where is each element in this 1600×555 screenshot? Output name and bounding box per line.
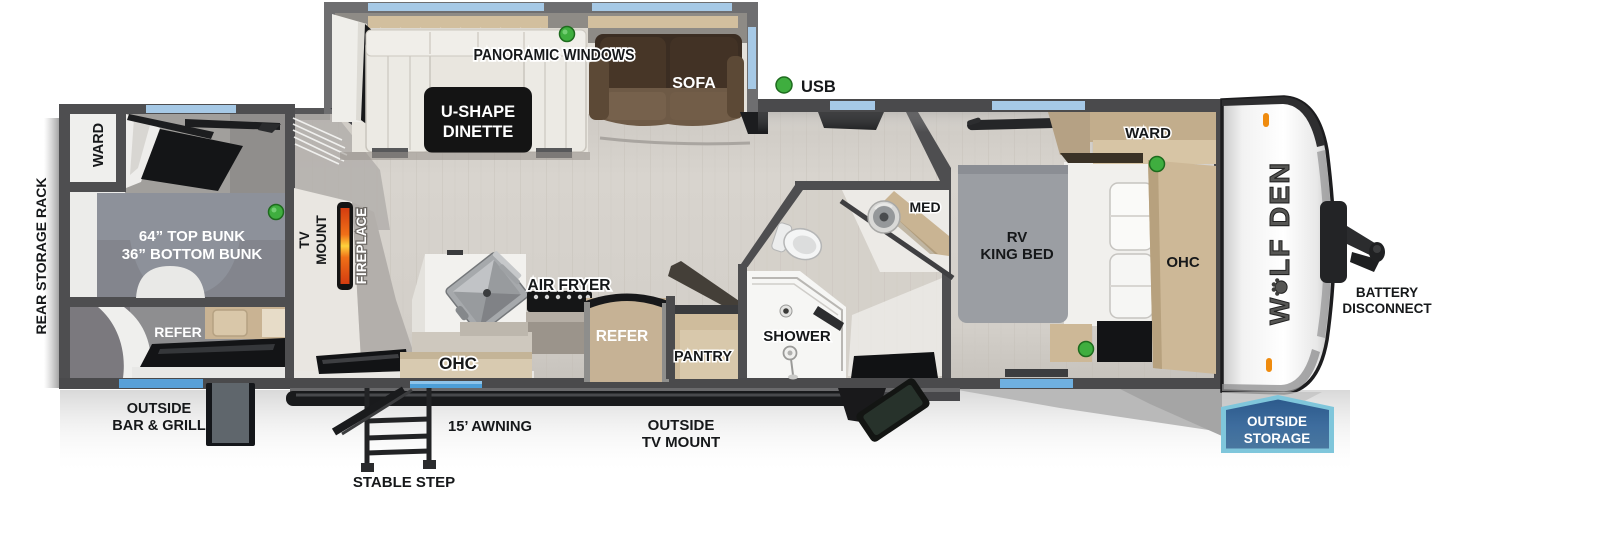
svg-text:WARD: WARD [91, 123, 107, 167]
svg-text:PANTRY: PANTRY [674, 349, 732, 365]
svg-text:OHC: OHC [1166, 254, 1200, 271]
svg-text:OHC: OHC [439, 354, 477, 373]
svg-text:SHOWER: SHOWER [763, 328, 831, 345]
svg-text:KING BED: KING BED [980, 246, 1054, 263]
svg-text:STABLE STEP: STABLE STEP [353, 474, 455, 491]
svg-text:FIREPLACE: FIREPLACE [354, 208, 369, 285]
svg-text:64” TOP BUNK: 64” TOP BUNK [139, 228, 245, 245]
svg-text:REAR STORAGE RACK: REAR STORAGE RACK [33, 178, 49, 335]
svg-text:WARD: WARD [1125, 125, 1171, 142]
svg-text:DISCONNECT: DISCONNECT [1342, 301, 1432, 316]
svg-text:U-SHAPE: U-SHAPE [441, 103, 515, 121]
svg-text:STORAGE: STORAGE [1244, 431, 1311, 446]
svg-text:TV MOUNT: TV MOUNT [642, 434, 720, 451]
svg-text:RV: RV [1007, 229, 1028, 246]
svg-text:MOUNT: MOUNT [314, 215, 329, 265]
svg-text:W●LF DEN: W●LF DEN [1264, 161, 1295, 325]
svg-text:DINETTE: DINETTE [443, 123, 514, 141]
svg-text:MED: MED [909, 199, 940, 215]
svg-text:BATTERY: BATTERY [1356, 285, 1418, 300]
svg-text:OUTSIDE: OUTSIDE [1247, 414, 1307, 429]
svg-text:36” BOTTOM BUNK: 36” BOTTOM BUNK [122, 246, 263, 263]
svg-text:OUTSIDE: OUTSIDE [648, 417, 715, 434]
svg-text:BAR & GRILL: BAR & GRILL [112, 418, 206, 434]
svg-text:PANORAMIC WINDOWS: PANORAMIC WINDOWS [474, 47, 635, 64]
svg-text:REFER: REFER [154, 324, 201, 340]
svg-text:OUTSIDE: OUTSIDE [127, 401, 192, 417]
svg-text:15’ AWNING: 15’ AWNING [448, 418, 532, 435]
svg-text:USB: USB [801, 78, 836, 96]
svg-text:AIR FRYER: AIR FRYER [528, 277, 611, 294]
svg-text:SOFA: SOFA [672, 75, 716, 92]
svg-text:TV: TV [297, 231, 312, 248]
svg-text:REFER: REFER [596, 328, 649, 345]
